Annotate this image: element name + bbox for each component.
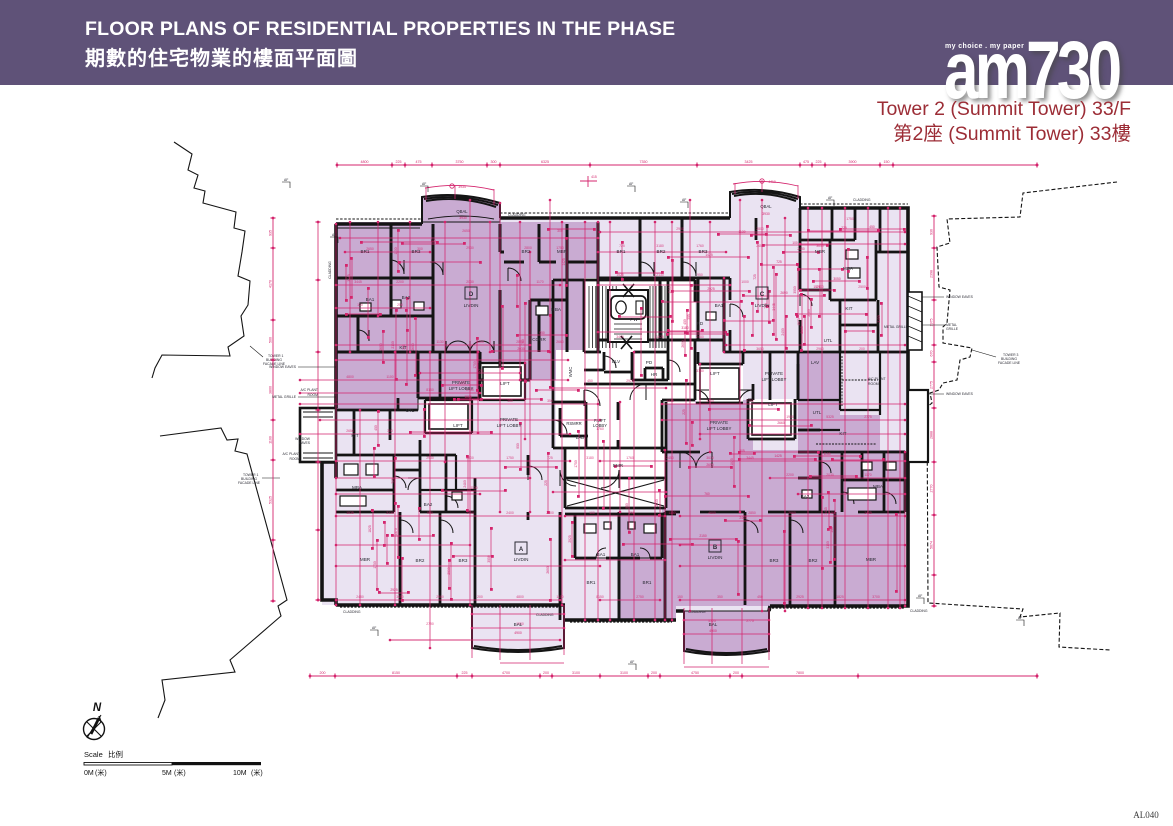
svg-text:4410: 4410 (768, 180, 776, 184)
svg-text:LIVDIN: LIVDIN (464, 303, 479, 308)
svg-text:1425: 1425 (656, 335, 664, 339)
svg-text:3445: 3445 (824, 507, 828, 515)
svg-text:2200: 2200 (786, 473, 794, 477)
svg-text:2480: 2480 (797, 247, 805, 251)
svg-text:225: 225 (816, 160, 822, 164)
svg-text:MBR: MBR (815, 249, 826, 254)
svg-text:2850: 2850 (748, 511, 756, 515)
svg-text:LAV: LAV (811, 360, 820, 365)
svg-text:225: 225 (396, 160, 402, 164)
svg-text:CLADDING: CLADDING (508, 213, 526, 217)
svg-text:ELV: ELV (612, 359, 621, 364)
svg-text:PW: PW (630, 317, 638, 322)
svg-text:BA2: BA2 (801, 494, 810, 499)
svg-text:2480: 2480 (696, 335, 704, 339)
svg-text:2400: 2400 (506, 511, 514, 515)
svg-text:HR: HR (651, 372, 658, 377)
svg-text:BA1: BA1 (597, 552, 606, 557)
svg-text:3445: 3445 (354, 280, 362, 284)
svg-text:8150: 8150 (392, 671, 400, 675)
svg-text:KIT: KIT (839, 431, 846, 436)
svg-text:LIVDIN: LIVDIN (514, 557, 529, 562)
svg-text:100: 100 (430, 239, 436, 243)
svg-text:2660: 2660 (777, 421, 785, 425)
svg-text:2750: 2750 (636, 595, 644, 599)
svg-text:AF: AF (629, 182, 633, 186)
svg-text:ROOM: ROOM (307, 393, 318, 397)
svg-text:2690: 2690 (706, 463, 714, 467)
svg-text:2690: 2690 (411, 343, 415, 351)
svg-text:B: B (713, 545, 718, 551)
svg-text:PD: PD (697, 321, 704, 326)
svg-text:PRIVATE: PRIVATE (452, 380, 470, 385)
svg-text:FACADE LINE: FACADE LINE (238, 481, 261, 485)
svg-text:100: 100 (357, 303, 363, 307)
svg-text:1825: 1825 (368, 525, 372, 533)
svg-text:LIVDIN: LIVDIN (708, 555, 723, 560)
svg-text:200: 200 (651, 671, 657, 675)
svg-text:3700: 3700 (706, 399, 714, 403)
svg-text:PRIVATE: PRIVATE (765, 371, 783, 376)
svg-text:UTL: UTL (406, 408, 415, 413)
svg-text:QBAL: QBAL (456, 209, 468, 214)
svg-text:AF: AF (682, 198, 686, 202)
svg-text:PRIVATE: PRIVATE (710, 420, 728, 425)
svg-text:BR3: BR3 (770, 558, 779, 563)
svg-text:BR2: BR2 (416, 558, 425, 563)
svg-text:950: 950 (697, 273, 703, 277)
svg-text:2800: 2800 (756, 227, 764, 231)
svg-text:AF: AF (630, 660, 634, 664)
svg-text:2150: 2150 (699, 534, 707, 538)
svg-text:150: 150 (884, 160, 890, 164)
svg-text:FACADE LINE: FACADE LINE (998, 361, 1021, 365)
svg-text:2398: 2398 (930, 270, 934, 278)
svg-text:2925: 2925 (707, 287, 715, 291)
svg-text:A/C PLANT: A/C PLANT (868, 377, 886, 381)
svg-text:1750: 1750 (473, 361, 477, 369)
svg-text:8150: 8150 (426, 388, 434, 392)
svg-text:3930: 3930 (762, 212, 770, 216)
svg-text:A/C PLANT: A/C PLANT (300, 388, 318, 392)
svg-text:3610: 3610 (706, 456, 714, 460)
svg-text:2775: 2775 (746, 619, 754, 623)
svg-text:MBA: MBA (551, 307, 562, 312)
svg-text:4600: 4600 (708, 511, 716, 515)
svg-text:2930: 2930 (676, 227, 684, 231)
svg-text:1825: 1825 (836, 595, 844, 599)
svg-text:MBA: MBA (843, 266, 854, 271)
svg-text:5325: 5325 (269, 496, 273, 504)
svg-text:935: 935 (269, 230, 273, 236)
svg-text:3180: 3180 (586, 456, 594, 460)
svg-text:比例: 比例 (108, 749, 123, 759)
svg-text:KIT: KIT (399, 345, 406, 350)
svg-text:MBR: MBR (360, 557, 371, 562)
svg-text:AF: AF (422, 182, 426, 186)
svg-text:CLADDING: CLADDING (343, 610, 361, 614)
svg-text:3050: 3050 (793, 286, 797, 294)
svg-text:WINDOW EAVES: WINDOW EAVES (269, 365, 297, 369)
svg-text:BAL: BAL (514, 622, 523, 627)
svg-text:LOBBY: LOBBY (593, 423, 607, 428)
svg-text:(米): (米) (95, 768, 107, 777)
svg-text:LIFT LOBBY: LIFT LOBBY (449, 386, 474, 391)
svg-text:BA1: BA1 (366, 297, 375, 302)
svg-text:1425: 1425 (562, 258, 566, 266)
svg-text:1170: 1170 (864, 473, 871, 477)
svg-text:LIVDIN: LIVDIN (755, 303, 770, 308)
svg-text:2925: 2925 (796, 595, 804, 599)
svg-text:1000: 1000 (741, 280, 749, 284)
svg-text:1130: 1130 (823, 452, 830, 456)
svg-text:3180: 3180 (696, 369, 704, 373)
svg-text:725: 725 (477, 369, 483, 373)
svg-text:1750: 1750 (506, 456, 514, 460)
svg-text:CLADDING: CLADDING (910, 609, 928, 613)
svg-text:3100: 3100 (572, 671, 580, 675)
svg-text:300: 300 (387, 429, 393, 433)
svg-text:10M: 10M (233, 770, 247, 777)
svg-text:2030: 2030 (466, 280, 474, 284)
svg-text:4800: 4800 (516, 595, 524, 599)
svg-text:2480: 2480 (807, 309, 811, 317)
svg-text:250: 250 (629, 511, 635, 515)
svg-text:3934: 3934 (458, 185, 466, 189)
svg-text:ROOM: ROOM (868, 382, 879, 386)
svg-text:AF: AF (828, 196, 832, 200)
svg-text:1825: 1825 (464, 395, 472, 399)
svg-text:GRILLE: GRILLE (946, 327, 959, 331)
svg-text:305: 305 (687, 314, 691, 320)
svg-text:2960: 2960 (436, 595, 444, 599)
svg-text:3050: 3050 (833, 277, 841, 281)
svg-text:UTL: UTL (813, 410, 822, 415)
svg-text:4900: 4900 (514, 631, 522, 635)
svg-text:CORR: CORR (532, 337, 546, 342)
svg-text:CLADDING: CLADDING (536, 613, 554, 617)
svg-text:4900: 4900 (709, 629, 717, 633)
svg-text:6325: 6325 (541, 160, 549, 164)
svg-text:1825: 1825 (666, 399, 674, 403)
svg-text:200: 200 (733, 671, 739, 675)
svg-text:1130: 1130 (436, 340, 443, 344)
svg-text:150: 150 (507, 399, 513, 403)
svg-text:RSMRR: RSMRR (566, 421, 581, 426)
svg-text:Scale: Scale (84, 750, 103, 759)
svg-text:200: 200 (320, 671, 326, 675)
svg-text:AL040: AL040 (1133, 810, 1159, 820)
svg-text:AF: AF (372, 626, 376, 630)
svg-text:7800: 7800 (796, 671, 804, 675)
svg-text:LIFT: LIFT (500, 381, 510, 386)
svg-text:0M: 0M (84, 770, 94, 777)
svg-text:200: 200 (859, 347, 865, 351)
svg-text:415: 415 (591, 175, 597, 179)
svg-text:100: 100 (830, 527, 834, 533)
svg-text:305: 305 (739, 449, 745, 453)
svg-text:5325: 5325 (826, 415, 834, 419)
svg-text:475: 475 (803, 160, 809, 164)
svg-text:AF: AF (284, 178, 288, 182)
svg-text:1750: 1750 (846, 217, 854, 221)
svg-text:1100: 1100 (556, 595, 563, 599)
svg-text:1130: 1130 (668, 511, 675, 515)
svg-text:200: 200 (477, 595, 483, 599)
svg-text:WINDOW EAVES: WINDOW EAVES (946, 392, 974, 396)
svg-text:3650: 3650 (396, 595, 404, 599)
svg-text:MBA: MBA (352, 485, 363, 490)
svg-text:3750: 3750 (456, 160, 464, 164)
svg-text:BR1: BR1 (587, 580, 596, 585)
svg-text:PD: PD (646, 360, 653, 365)
svg-text:LIFT LOBBY: LIFT LOBBY (497, 423, 522, 428)
svg-text:A/C PLANT: A/C PLANT (282, 452, 300, 456)
svg-text:1975: 1975 (930, 319, 934, 327)
svg-text:225: 225 (462, 671, 468, 675)
svg-text:1750: 1750 (574, 460, 578, 468)
svg-text:3900: 3900 (849, 160, 857, 164)
svg-text:1130: 1130 (470, 486, 477, 490)
svg-text:1760: 1760 (696, 244, 704, 248)
svg-text:2690: 2690 (546, 566, 550, 574)
svg-text:950: 950 (516, 443, 520, 449)
svg-text:1570: 1570 (813, 285, 821, 289)
svg-text:LIFT: LIFT (453, 423, 463, 428)
svg-text:725: 725 (776, 260, 782, 264)
svg-text:2030: 2030 (447, 567, 451, 575)
svg-text:1130: 1130 (394, 247, 398, 254)
svg-text:2790: 2790 (746, 399, 754, 403)
svg-text:1100: 1100 (386, 375, 393, 379)
svg-text:2400: 2400 (739, 516, 747, 520)
svg-text:KIT: KIT (351, 433, 358, 438)
svg-text:3460: 3460 (616, 335, 624, 339)
svg-text:EAD: EAD (576, 435, 585, 440)
svg-text:2660: 2660 (788, 511, 796, 515)
svg-text:2650: 2650 (462, 229, 470, 233)
svg-text:2775: 2775 (864, 415, 872, 419)
svg-text:300: 300 (557, 229, 563, 233)
svg-text:1425: 1425 (864, 511, 872, 515)
svg-text:1525: 1525 (346, 511, 354, 515)
svg-text:2400: 2400 (781, 328, 785, 336)
svg-text:UTL: UTL (824, 338, 833, 343)
svg-text:350: 350 (547, 399, 553, 403)
svg-text:LIFT: LIFT (710, 371, 720, 376)
svg-text:3650: 3650 (756, 347, 764, 351)
svg-text:3180: 3180 (681, 326, 689, 330)
svg-text:3445: 3445 (746, 456, 754, 460)
svg-text:725: 725 (753, 274, 757, 280)
svg-text:3445: 3445 (772, 303, 776, 311)
svg-text:2790: 2790 (426, 622, 434, 626)
svg-text:CLADDING: CLADDING (688, 610, 706, 614)
svg-text:760: 760 (521, 339, 525, 345)
svg-text:1170: 1170 (536, 280, 543, 284)
svg-text:3610: 3610 (816, 244, 824, 248)
svg-text:2030: 2030 (517, 347, 525, 351)
svg-text:BA2: BA2 (402, 295, 411, 300)
svg-text:5M: 5M (162, 770, 172, 777)
svg-text:2930: 2930 (466, 246, 474, 250)
svg-text:225: 225 (682, 409, 686, 415)
svg-text:AF: AF (332, 233, 336, 237)
svg-text:1750: 1750 (373, 561, 377, 569)
svg-text:CLADDING: CLADDING (853, 198, 871, 202)
svg-text:936: 936 (930, 229, 934, 235)
svg-text:2690: 2690 (780, 291, 788, 295)
svg-text:150: 150 (677, 595, 683, 599)
svg-text:725: 725 (391, 478, 395, 484)
svg-text:ROOM: ROOM (289, 457, 300, 461)
svg-text:1130: 1130 (738, 230, 745, 234)
svg-text:225: 225 (841, 226, 847, 230)
svg-text:1425: 1425 (774, 454, 782, 458)
svg-text:225: 225 (544, 480, 548, 486)
svg-text:CLADDING: CLADDING (328, 261, 332, 279)
svg-text:950: 950 (539, 331, 545, 335)
svg-text:2500: 2500 (858, 285, 866, 289)
svg-text:2770: 2770 (930, 485, 934, 493)
svg-text:670: 670 (930, 351, 934, 357)
svg-text:(米): (米) (251, 768, 263, 777)
svg-text:2030: 2030 (655, 499, 659, 507)
svg-text:450: 450 (374, 425, 378, 431)
svg-text:4750: 4750 (691, 671, 699, 675)
svg-text:N: N (93, 702, 102, 714)
svg-text:LIFT: LIFT (768, 402, 778, 407)
svg-text:2450: 2450 (666, 456, 674, 460)
svg-text:1570: 1570 (797, 318, 801, 326)
svg-text:3425: 3425 (745, 160, 753, 164)
svg-text:8150: 8150 (596, 595, 604, 599)
svg-text:LIFT LOBBY: LIFT LOBBY (762, 377, 787, 382)
svg-text:BA1: BA1 (715, 303, 724, 308)
svg-text:2660: 2660 (800, 326, 804, 334)
svg-text:1130: 1130 (668, 286, 672, 293)
svg-text:BR2: BR2 (657, 249, 666, 254)
svg-text:100: 100 (589, 511, 595, 515)
svg-text:METAL GRILLE: METAL GRILLE (884, 325, 909, 329)
svg-text:450: 450 (869, 225, 875, 229)
svg-text:1825: 1825 (730, 458, 734, 466)
svg-text:1100: 1100 (269, 436, 273, 444)
svg-text:BA2: BA2 (424, 502, 433, 507)
svg-text:3180: 3180 (826, 541, 830, 549)
svg-text:KIT: KIT (845, 306, 852, 311)
svg-text:2925: 2925 (626, 379, 634, 383)
svg-text:450: 450 (587, 379, 593, 383)
svg-text:BAL: BAL (709, 622, 718, 627)
svg-text:950: 950 (427, 511, 433, 515)
svg-text:350: 350 (717, 595, 723, 599)
svg-text:WINDOW EAVES: WINDOW EAVES (946, 295, 974, 299)
svg-text:A: A (519, 547, 524, 553)
svg-text:3445: 3445 (347, 274, 351, 282)
svg-text:BR1: BR1 (617, 249, 626, 254)
svg-text:2150: 2150 (391, 341, 395, 349)
svg-text:2480: 2480 (356, 595, 364, 599)
svg-text:2150: 2150 (877, 315, 881, 323)
svg-text:1760: 1760 (626, 456, 634, 460)
svg-text:PRIVATE: PRIVATE (500, 417, 518, 422)
svg-text:500: 500 (269, 337, 273, 343)
svg-text:2960: 2960 (816, 347, 824, 351)
svg-text:4800: 4800 (361, 160, 369, 164)
svg-text:4600: 4600 (476, 340, 484, 344)
svg-text:2690: 2690 (681, 340, 685, 348)
svg-text:3800: 3800 (269, 386, 273, 394)
svg-text:4800: 4800 (346, 375, 354, 379)
svg-text:450: 450 (757, 595, 763, 599)
svg-text:BA1: BA1 (631, 552, 640, 557)
svg-text:AF: AF (918, 594, 922, 598)
svg-text:LIFT LOBBY: LIFT LOBBY (707, 426, 732, 431)
svg-text:BR3: BR3 (699, 249, 708, 254)
svg-text:2130: 2130 (386, 511, 394, 515)
svg-text:EAVES: EAVES (299, 441, 311, 445)
svg-text:1950: 1950 (786, 415, 794, 419)
svg-text:D: D (469, 292, 474, 298)
svg-text:BR2: BR2 (522, 249, 531, 254)
svg-text:MBA: MBA (873, 484, 884, 489)
svg-text:300: 300 (491, 160, 497, 164)
svg-text:950: 950 (625, 503, 629, 509)
svg-text:2888: 2888 (930, 431, 934, 439)
svg-text:2030: 2030 (826, 473, 834, 477)
svg-text:BR1: BR1 (643, 580, 652, 585)
svg-text:2930: 2930 (426, 456, 434, 460)
svg-text:3930: 3930 (459, 216, 467, 220)
svg-text:METAL GRILLE: METAL GRILLE (272, 395, 297, 399)
svg-text:1570: 1570 (394, 528, 398, 536)
svg-text:MBR: MBR (866, 557, 877, 562)
svg-text:3050: 3050 (487, 555, 491, 563)
svg-text:5674: 5674 (930, 541, 934, 549)
svg-text:2690: 2690 (379, 343, 383, 351)
svg-text:760: 760 (704, 492, 710, 496)
svg-text:(米): (米) (174, 768, 186, 777)
svg-text:BR1: BR1 (361, 249, 370, 254)
svg-text:BR3: BR3 (459, 558, 468, 563)
svg-text:AF: AF (1018, 616, 1022, 620)
svg-text:4170: 4170 (269, 280, 273, 288)
svg-text:MBR: MBR (557, 249, 568, 254)
svg-text:2775: 2775 (930, 381, 934, 389)
svg-text:WMC: WMC (568, 367, 573, 377)
svg-text:475: 475 (416, 160, 422, 164)
svg-text:200: 200 (543, 671, 549, 675)
svg-text:2660: 2660 (556, 340, 564, 344)
svg-text:BR2: BR2 (809, 558, 818, 563)
svg-text:2925: 2925 (568, 535, 572, 543)
svg-text:3180: 3180 (656, 244, 664, 248)
svg-text:7350: 7350 (640, 160, 648, 164)
svg-text:2200: 2200 (396, 280, 404, 284)
svg-text:BR3: BR3 (412, 249, 421, 254)
svg-text:2480: 2480 (463, 480, 467, 488)
svg-text:250: 250 (397, 303, 403, 307)
svg-text:4700: 4700 (502, 671, 510, 675)
svg-text:3700: 3700 (872, 595, 880, 599)
svg-text:3100: 3100 (620, 671, 628, 675)
svg-text:100: 100 (792, 241, 798, 245)
svg-text:2925: 2925 (390, 588, 398, 592)
svg-text:C: C (760, 292, 765, 298)
svg-text:450: 450 (683, 319, 687, 325)
svg-text:EMR: EMR (613, 463, 624, 468)
